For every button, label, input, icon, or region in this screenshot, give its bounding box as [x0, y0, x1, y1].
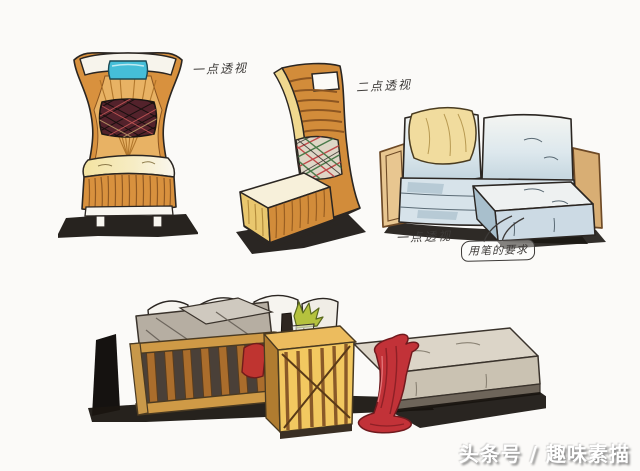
sofa-set-scene-sketch	[86, 282, 546, 442]
annotation-boxed-note: 用笔的要求	[461, 239, 536, 262]
annotation-one-point-sofa: 一点透视	[396, 227, 453, 246]
highback-chair-front-sketch	[58, 40, 198, 240]
sketch-canvas: 一点透视 二点透视 一点透视 用笔的要求 头条号 / 趣味素描	[0, 0, 640, 471]
annotation-two-point-chair: 二点透视	[356, 76, 413, 96]
highback-chair-angle-sketch	[224, 56, 374, 256]
annotation-one-point-chair: 一点透视	[192, 59, 249, 78]
watermark-text: 头条号 / 趣味素描	[459, 438, 630, 467]
